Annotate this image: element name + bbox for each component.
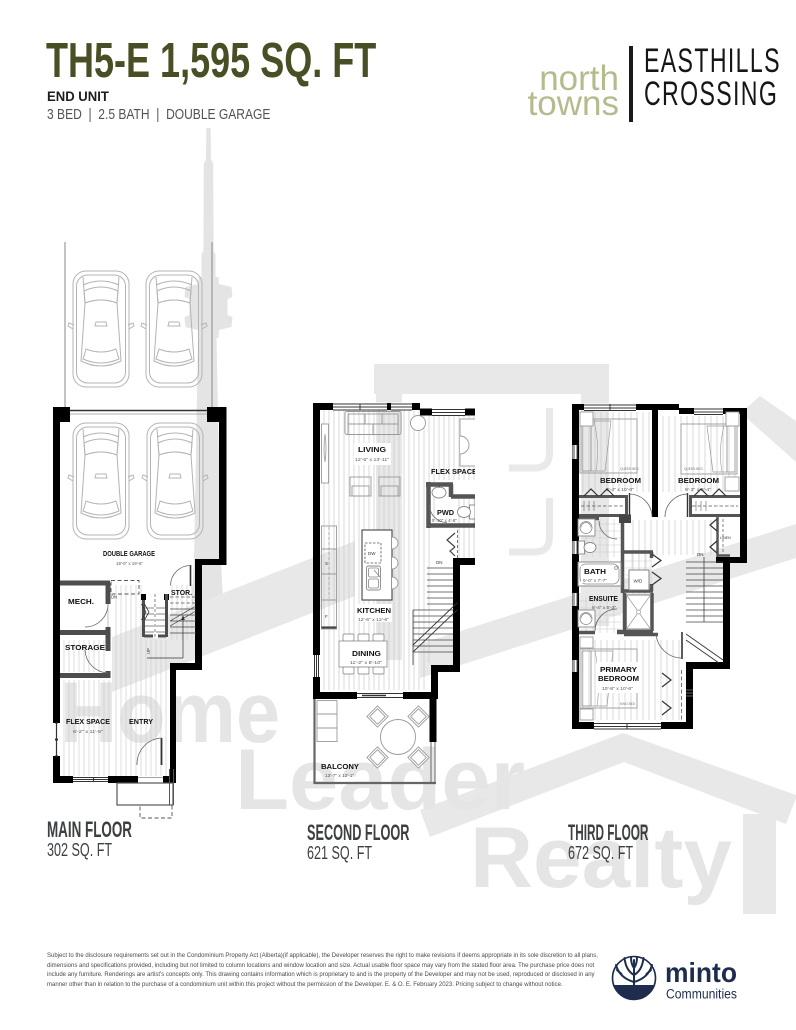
svg-text:Communities: Communities (666, 987, 737, 1002)
svg-text:LINEN: LINEN (720, 536, 731, 540)
svg-text:BALCONY: BALCONY (321, 762, 359, 771)
svg-text:FLEX SPACE: FLEX SPACE (431, 467, 475, 476)
svg-text:DOUBLE GARAGE: DOUBLE GARAGE (103, 549, 155, 558)
svg-text:FLEX SPACE: FLEX SPACE (66, 717, 110, 726)
svg-text:12'-6" x 13'-11": 12'-6" x 13'-11" (355, 457, 390, 462)
svg-text:QUEEN BED: QUEEN BED (684, 467, 703, 471)
svg-text:PRIMARY: PRIMARY (600, 667, 637, 674)
svg-text:minto: minto (665, 957, 737, 988)
svg-text:DINING: DINING (352, 649, 381, 658)
svg-text:DW: DW (368, 551, 376, 556)
svg-text:BEDROOM: BEDROOM (678, 478, 719, 485)
svg-text:S: S (325, 561, 328, 566)
svg-text:5'-0" x 7'-7": 5'-0" x 7'-7" (583, 578, 608, 583)
svg-text:BATH: BATH (584, 569, 606, 576)
svg-text:BEDROOM: BEDROOM (598, 676, 639, 683)
svg-text:5'-10" x 4'-8": 5'-10" x 4'-8" (432, 518, 458, 523)
svg-text:6'-2" x 11'-5": 6'-2" x 11'-5" (73, 729, 104, 734)
svg-text:W/D: W/D (634, 579, 643, 584)
svg-text:UP: UP (146, 648, 151, 654)
svg-text:KING BED: KING BED (620, 702, 636, 706)
svg-text:STOR.: STOR. (171, 590, 192, 597)
svg-text:13'-7" x 12'-1": 13'-7" x 12'-1" (325, 773, 354, 778)
svg-text:PWD: PWD (437, 510, 454, 517)
svg-text:12'-6" x 12'-6": 12'-6" x 12'-6" (358, 617, 389, 622)
svg-text:10'-8" x 10'-6": 10'-8" x 10'-6" (602, 686, 634, 691)
svg-text:8'-4" x 10'-0": 8'-4" x 10'-0" (606, 487, 635, 492)
svg-text:LIVING: LIVING (358, 445, 386, 454)
svg-text:STORAGE: STORAGE (65, 645, 105, 652)
svg-text:ENSUITE: ENSUITE (589, 596, 618, 603)
svg-text:BEDROOM: BEDROOM (600, 478, 641, 485)
svg-text:KITCHEN: KITCHEN (357, 606, 391, 615)
svg-text:F: F (325, 614, 328, 619)
svg-text:DN: DN (111, 595, 117, 600)
svg-text:DN: DN (436, 560, 443, 565)
svg-text:MECH.: MECH. (68, 599, 94, 606)
svg-text:ENTRY: ENTRY (129, 717, 153, 726)
svg-text:QUEEN BED: QUEEN BED (620, 467, 639, 471)
svg-text:19'-0" x 19'-6": 19'-0" x 19'-6" (116, 561, 143, 566)
svg-text:DN: DN (697, 552, 704, 557)
svg-text:11'-2" x 8'-10": 11'-2" x 8'-10" (350, 660, 383, 665)
